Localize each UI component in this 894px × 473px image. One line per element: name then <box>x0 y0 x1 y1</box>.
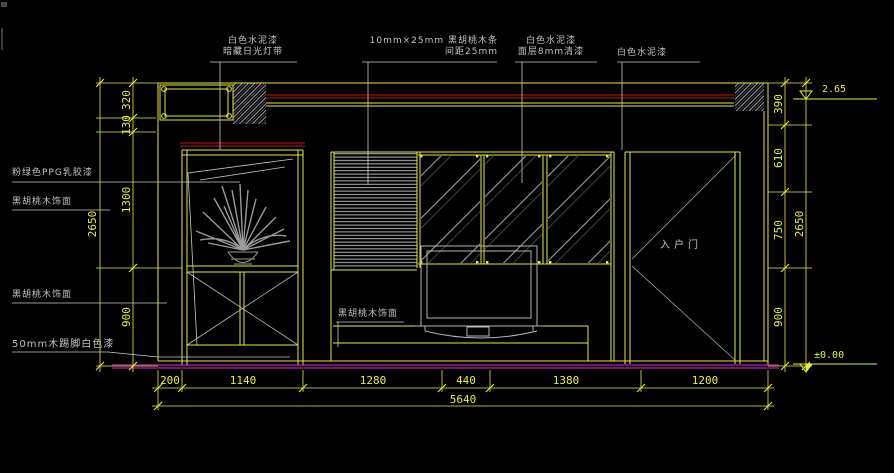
dim-bottom-200: 200 <box>140 375 200 387</box>
callout-ppg-paint: 粉绿色PPG乳胶漆 <box>12 168 93 179</box>
callout-clear-varnish: 白色水泥漆 面层8mm清漆 <box>503 36 599 58</box>
callout-line1: 白色水泥漆 <box>596 48 688 59</box>
callout-line1: 白色水泥漆 <box>196 36 310 47</box>
callout-walnut-veneer-1: 黑胡桃木饰面 <box>12 197 72 208</box>
dim-right-total: 2650 <box>794 194 806 254</box>
callout-tv-cabinet-veneer: 黑胡桃木饰面 <box>338 309 398 320</box>
dim-left-total: 2650 <box>87 194 99 254</box>
dim-right-610: 610 <box>773 128 785 188</box>
callout-line2: 间距25mm <box>352 47 498 58</box>
floor-line <box>112 365 779 368</box>
dim-right-900: 900 <box>773 287 785 347</box>
stray-marks <box>1 2 7 50</box>
entry-door <box>625 152 740 364</box>
callout-walnut-veneer-2: 黑胡桃木饰面 <box>12 290 72 301</box>
callout-line1: 白色水泥漆 <box>503 36 599 47</box>
dim-bottom-1140: 1140 <box>213 375 273 387</box>
dim-bottom-1380: 1380 <box>536 375 596 387</box>
level-text-bottom: ±0.00 <box>814 350 844 361</box>
glass-panels <box>417 152 614 361</box>
dim-right-390: 390 <box>773 74 785 134</box>
potted-plant <box>196 184 290 264</box>
dim-right-750: 750 <box>773 200 785 260</box>
dim-left-130: 130 <box>121 95 133 155</box>
callout-line2: 暗藏日光灯带 <box>196 47 310 58</box>
cad-elevation-canvas: 白色水泥漆 暗藏日光灯带 10mm×25mm 黑胡桃木条 间距25mm 白色水泥… <box>0 0 894 473</box>
callout-line1: 10mm×25mm 黑胡桃木条 <box>352 36 498 47</box>
callout-walnut-strips: 10mm×25mm 黑胡桃木条 间距25mm <box>352 36 498 58</box>
dim-bottom-440: 440 <box>436 375 496 387</box>
dim-bottom-1200: 1200 <box>675 375 735 387</box>
wall-hatch-blocks <box>233 83 764 124</box>
level-text-top: 2.65 <box>822 84 846 95</box>
tv-cabinet <box>333 326 588 361</box>
callout-white-cement: 白色水泥漆 <box>596 48 688 59</box>
callout-line2: 面层8mm清漆 <box>503 47 599 58</box>
dim-bottom-total: 5640 <box>433 394 493 406</box>
dim-left-900: 900 <box>121 287 133 347</box>
dim-bottom-1280: 1280 <box>343 375 403 387</box>
callout-ceiling-paint: 白色水泥漆 暗藏日光灯带 <box>196 36 310 58</box>
dim-left-1300: 1300 <box>121 170 133 230</box>
cabinet-door-diagonals <box>187 272 298 345</box>
callout-skirting: 50mm木踢脚白色漆 <box>12 339 114 350</box>
ceiling-light-cove <box>160 85 233 120</box>
entry-door-label: 入户门 <box>660 236 702 251</box>
